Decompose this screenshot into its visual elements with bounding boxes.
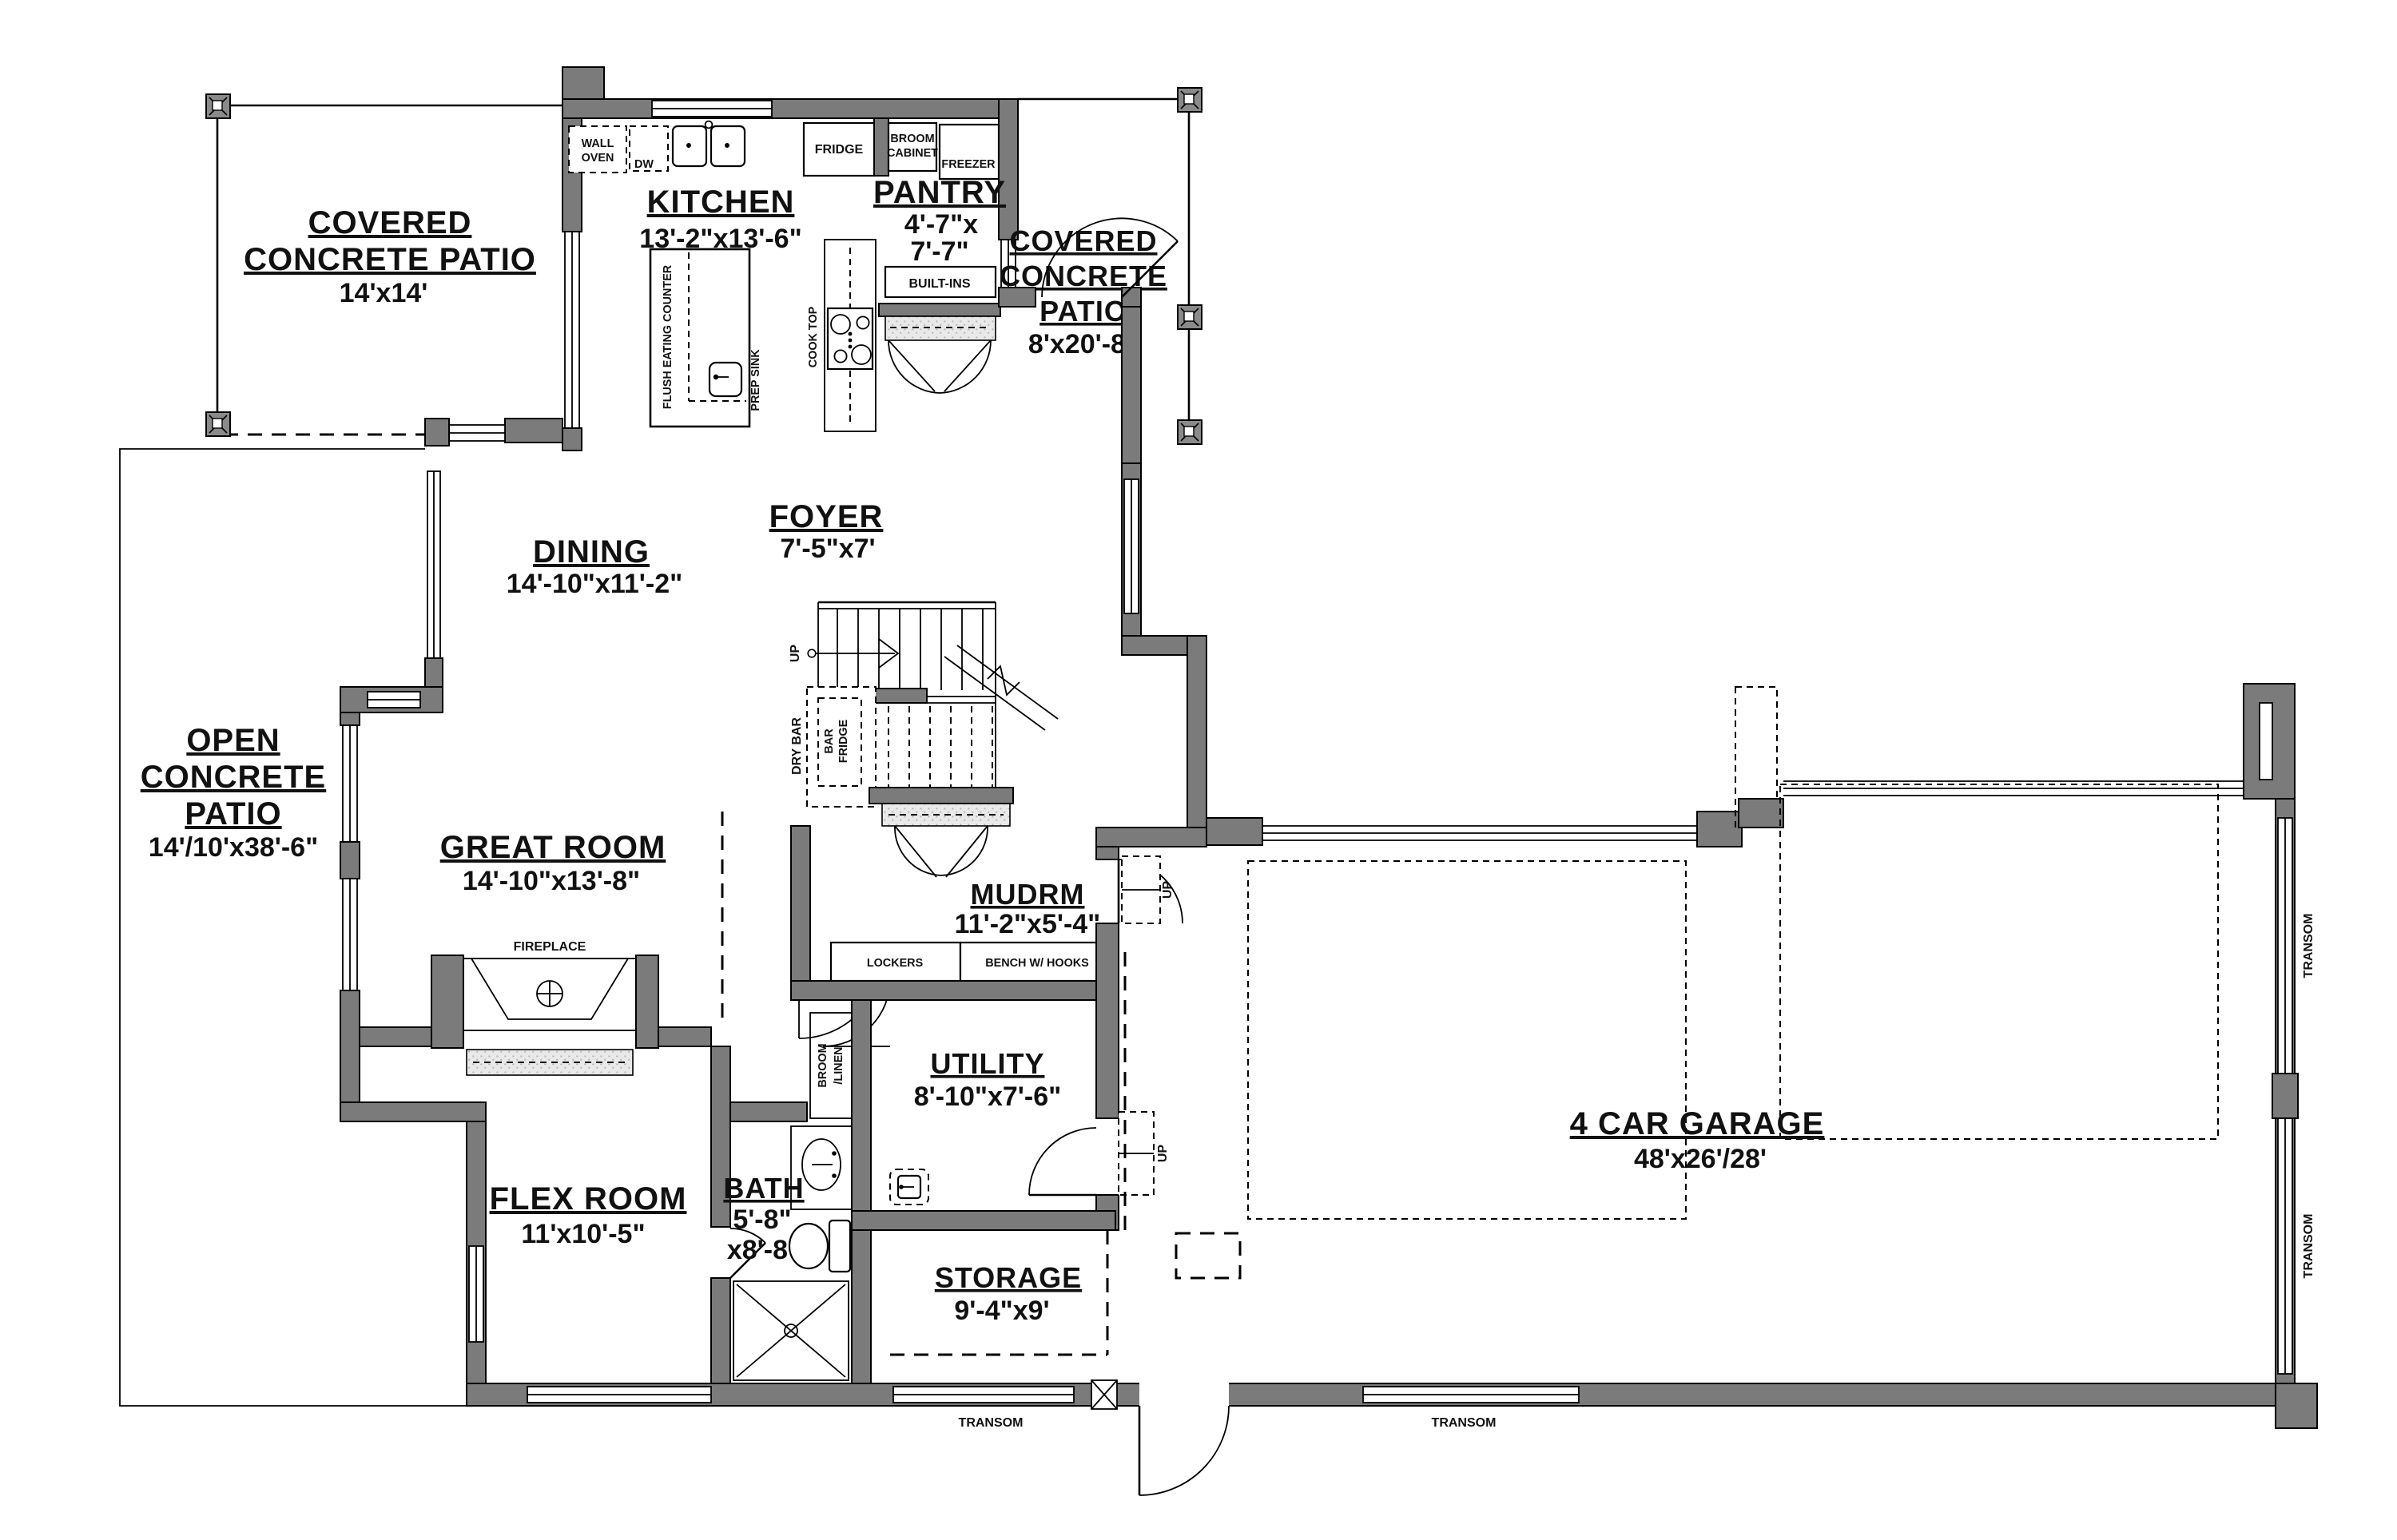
foyer-title: FOYER <box>769 499 884 534</box>
broom-linen-label-line2: /LINEN <box>833 1046 845 1084</box>
garage-to-utility-door: UP <box>1029 1112 1170 1195</box>
pantry-double-doors <box>888 340 991 393</box>
shower-icon <box>733 1281 849 1380</box>
garage-door-left <box>1262 826 1697 840</box>
flex-room: FLEX ROOM 11'x10'-5" <box>490 1181 687 1249</box>
great-room-dims: 14'-10"x13'-8" <box>463 866 640 896</box>
utility-sink-icon <box>890 1169 928 1205</box>
open-patio-dims: 14'/10'x38'-6" <box>149 832 318 863</box>
freezer-label: FREEZER <box>941 158 996 171</box>
great-room-title: GREAT ROOM <box>440 830 666 865</box>
patio-post-icon <box>206 412 230 436</box>
kitchen-island: FLUSH EATING COUNTER PREP SINK <box>650 249 762 427</box>
wall-oven-label-line1: WALL <box>582 137 614 150</box>
dry-bar-label: DRY BAR <box>790 717 804 775</box>
dry-bar: DRY BAR BAR FRIDGE <box>790 687 876 807</box>
garage-step-up-label: UP <box>1161 881 1175 899</box>
mudroom: MUDRM 11'-2"x5'-4" LOCKERS BENCH W/ HOOK… <box>791 826 1119 1000</box>
bar-fridge-label-line1: BAR <box>823 728 836 754</box>
mudroom-title: MUDRM <box>971 878 1085 911</box>
kitchen-title: KITCHEN <box>647 185 795 220</box>
bath-title: BATH <box>723 1172 804 1205</box>
garage-bay-right-dashed <box>1780 784 2218 1139</box>
floor-plan-page: COVERED CONCRETE PATIO 14'x14' OPEN CONC… <box>0 0 2397 1540</box>
wall-column-x-icon <box>1091 1380 1117 1409</box>
dining: DINING 14'-10"x11'-2" <box>507 534 682 599</box>
bar-fridge-label-line2: FRIDGE <box>837 719 850 763</box>
pantry-dims-line1: 4'-7"x <box>904 209 978 240</box>
pantry-dims-line2: 7'-7" <box>910 236 968 267</box>
broom-linen-label-line1: BROOM <box>817 1043 829 1087</box>
fireplace: FIREPLACE <box>360 940 711 1075</box>
bench-label: BENCH W/ HOOKS <box>985 957 1089 970</box>
mudroom-dims: 11'-2"x5'-4" <box>955 909 1101 939</box>
patio-post-icon <box>1178 88 1202 112</box>
patio-left-dims: 14'x14' <box>340 278 428 308</box>
foyer-dims: 7'-5"x7' <box>780 534 875 564</box>
staircase: UP DRY BAR BAR FRIDGE <box>789 602 1058 877</box>
utility-step-up-label: UP <box>1156 1145 1170 1163</box>
storage-title: STORAGE <box>935 1261 1082 1294</box>
utility-dims: 8'-10"x7'-6" <box>914 1082 1062 1112</box>
patio-left-title-line1: COVERED <box>308 205 472 240</box>
bath-dims-line1: 5'-8" <box>733 1205 791 1235</box>
open-patio-title-line2: CONCRETE <box>141 760 326 795</box>
open-concrete-patio: OPEN CONCRETE PATIO 14'/10'x38'-6" <box>120 449 467 1406</box>
open-patio-title-line1: OPEN <box>186 723 280 758</box>
dishwasher-label: DW <box>634 158 654 171</box>
built-ins-label: BUILT-INS <box>908 277 970 291</box>
transom-label-right-upper: TRANSOM <box>2302 914 2316 978</box>
transom-label-bottom-left: TRANSOM <box>959 1416 1024 1430</box>
broom-cabinet-label-line1: BROOM <box>890 133 934 145</box>
fridge-label: FRIDGE <box>815 143 864 157</box>
stair-treads-upper <box>837 609 983 690</box>
wall-oven-label-line2: OVEN <box>582 152 614 165</box>
floor-plan-drawing: COVERED CONCRETE PATIO 14'x14' OPEN CONC… <box>0 0 2397 1540</box>
fireplace-symbol-icon <box>537 981 562 1006</box>
garage-to-mudroom-door: UP <box>1119 856 1183 923</box>
garage: TRANSOM TRANSOM 4 CAR GARAGE 48'x26'/28' <box>1206 684 2316 1383</box>
flex-room-dims: 11'x10'-5" <box>521 1219 645 1249</box>
dining-dims: 14'-10"x11'-2" <box>507 569 682 599</box>
cooktop-label: COOK TOP <box>807 306 820 367</box>
covered-patio-left: COVERED CONCRETE PATIO 14'x14' <box>206 94 562 436</box>
stair-up-arrow-icon <box>808 639 898 668</box>
utility-room: UTILITY 8'-10"x7'-6" <box>852 1000 1115 1383</box>
broom-cabinet-label-line2: CABINET <box>887 147 938 160</box>
storage-dims: 9'-4"x9' <box>954 1296 1049 1326</box>
garage-title: 4 CAR GARAGE <box>1570 1106 1825 1141</box>
patio-right-title-line1: COVERED <box>1009 224 1157 257</box>
rear-exit-door <box>1139 1380 1229 1495</box>
flex-room-title: FLEX ROOM <box>490 1181 687 1217</box>
cooktop-counter: COOK TOP <box>807 240 876 431</box>
patio-right-title-line3: PATIO <box>1039 295 1127 327</box>
covered-patio-right: COVERED CONCRETE PATIO 8'x20'-8" <box>1000 88 1202 444</box>
toilet-icon <box>789 1220 850 1272</box>
utility-title: UTILITY <box>931 1047 1045 1080</box>
pantry: BROOM CABINET FREEZER PANTRY 4'-7"x 7'-7… <box>873 99 1018 393</box>
stair-up-label: UP <box>789 645 802 663</box>
hall-double-doors <box>895 826 988 877</box>
garage-bay-left-dashed <box>1248 861 1686 1219</box>
garage-dims: 48'x26'/28' <box>1634 1144 1767 1174</box>
dining-title: DINING <box>533 534 650 570</box>
fireplace-label: FIREPLACE <box>514 940 586 954</box>
prep-sink-icon <box>710 363 741 396</box>
kitchen-sink-icon <box>673 121 745 166</box>
south-wall: TRANSOM TRANSOM <box>467 1380 2317 1495</box>
lockers-label: LOCKERS <box>867 957 924 970</box>
flush-eating-counter-label: FLUSH EATING COUNTER <box>662 264 674 409</box>
bath: BROOM /LINEN BATH 5'-8" x8'-8" <box>711 1013 852 1383</box>
pantry-title: PANTRY <box>873 175 1006 210</box>
garage-door-right <box>1783 781 2244 796</box>
prep-sink-label: PREP SINK <box>749 349 762 411</box>
open-patio-title-line3: PATIO <box>185 796 281 832</box>
garage-ne-pier <box>2244 684 2295 799</box>
transom-label-bottom-right: TRANSOM <box>1432 1416 1497 1430</box>
patio-post-icon <box>206 94 230 118</box>
patio-left-title-line2: CONCRETE PATIO <box>244 242 536 277</box>
storage-room: STORAGE 9'-4"x9' <box>890 952 1240 1355</box>
patio-post-icon <box>1178 305 1202 329</box>
transom-label-right-lower: TRANSOM <box>2302 1214 2316 1279</box>
patio-post-icon <box>1178 420 1202 444</box>
